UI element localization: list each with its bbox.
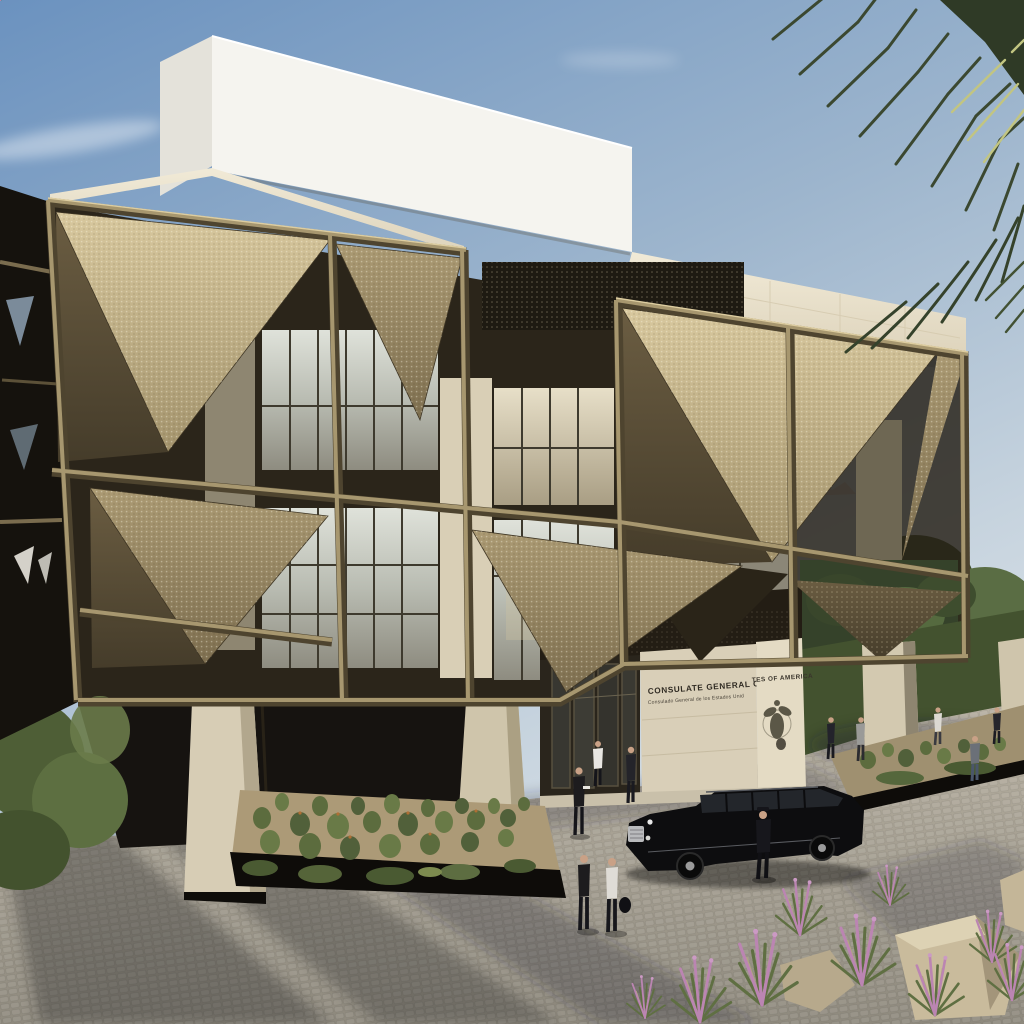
- entrance: [540, 655, 640, 802]
- consulate-rendering: CONSULATE GENERAL OF Consulado General d…: [0, 0, 1024, 1024]
- rendering-canvas: CONSULATE GENERAL OF Consulado General d…: [0, 0, 1024, 1024]
- bag: [619, 897, 631, 913]
- cactus-bed-left: [230, 790, 566, 898]
